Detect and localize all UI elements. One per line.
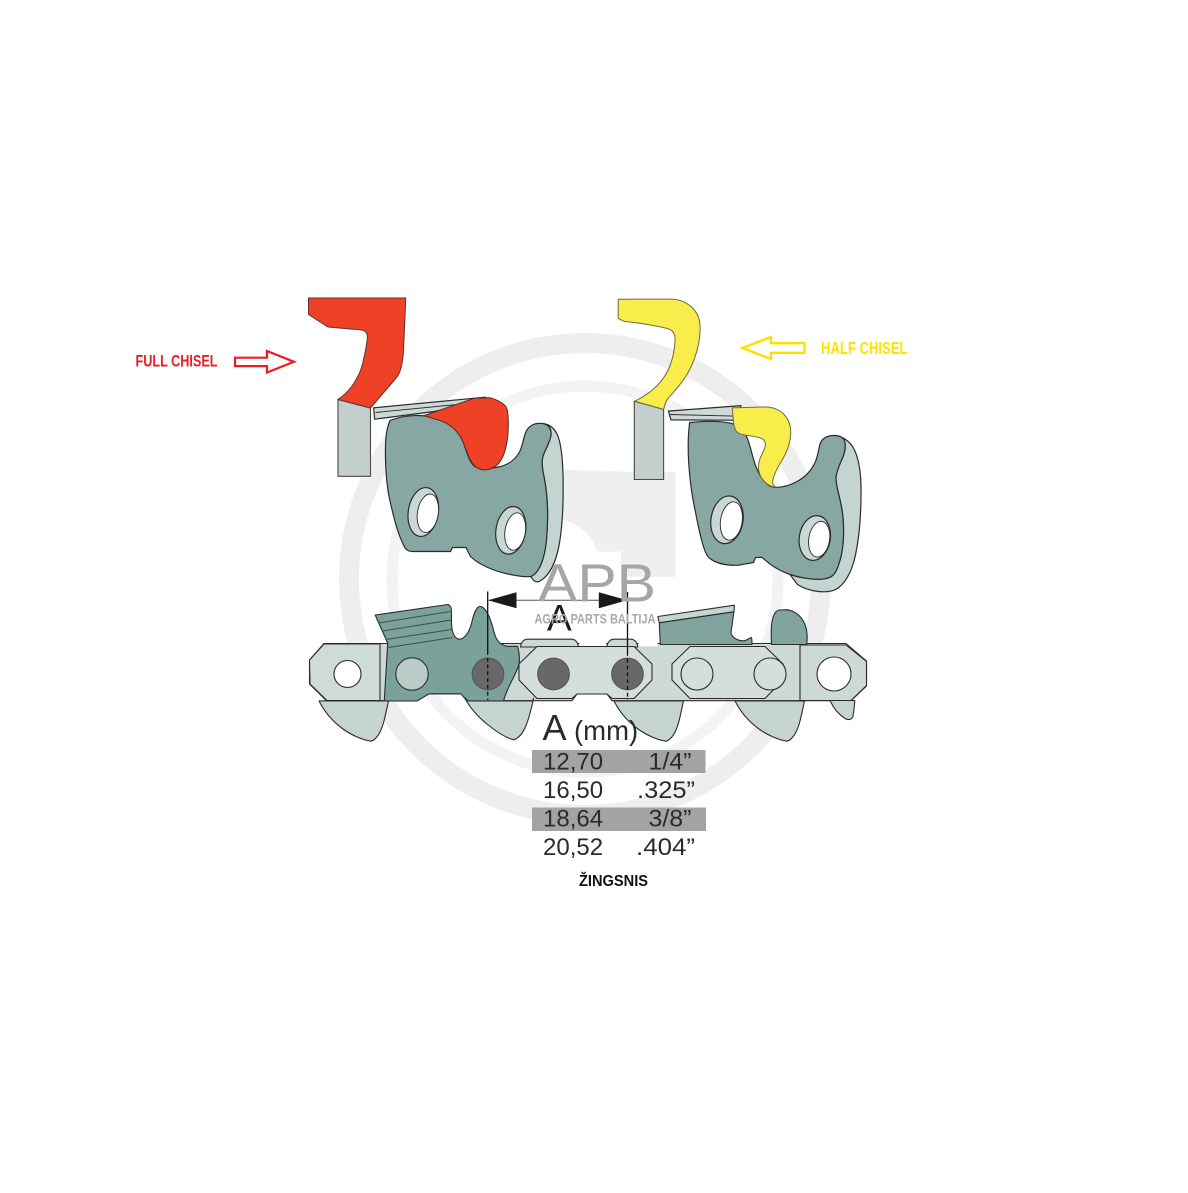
- svg-text:20,52: 20,52: [543, 834, 603, 861]
- svg-text:FULL CHISEL: FULL CHISEL: [136, 352, 218, 371]
- svg-text:ŽINGSNIS: ŽINGSNIS: [579, 872, 648, 890]
- svg-text:AGRO PARTS BALTIJA: AGRO PARTS BALTIJA: [535, 611, 656, 627]
- svg-text:16,50: 16,50: [543, 777, 603, 804]
- svg-text:A: A: [543, 707, 567, 748]
- svg-text:(mm): (mm): [574, 715, 638, 746]
- svg-text:18,64: 18,64: [543, 806, 603, 833]
- svg-text:12,70: 12,70: [543, 749, 603, 776]
- svg-text:APB: APB: [538, 554, 656, 614]
- svg-text:.325”: .325”: [637, 777, 695, 804]
- svg-text:1/4”: 1/4”: [649, 749, 692, 776]
- svg-text:HALF CHISEL: HALF CHISEL: [821, 338, 908, 358]
- svg-text:3/8”: 3/8”: [649, 806, 692, 833]
- svg-text:.404”: .404”: [636, 834, 695, 861]
